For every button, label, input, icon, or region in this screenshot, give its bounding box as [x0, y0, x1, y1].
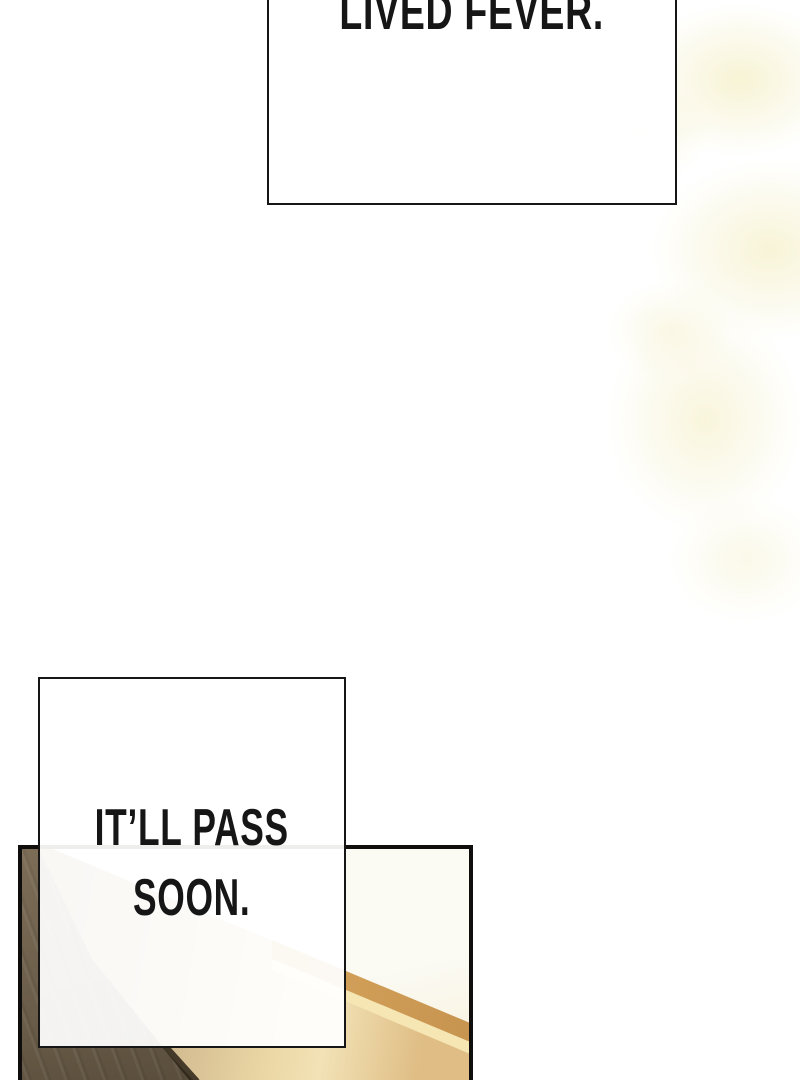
speech-text-top-line: LIVED FEVER. [340, 0, 605, 38]
speech-text-middle-line1: IT’LL PASS [95, 793, 289, 863]
speech-text-middle: IT’LL PASS SOON. [49, 793, 334, 933]
speech-box-top: LIVED FEVER. [267, 0, 677, 205]
comic-page: LIVED FEVER. IT’LL PASS SOON. [0, 0, 800, 1080]
speech-text-middle-line2: SOON. [95, 863, 289, 933]
speech-box-middle: IT’LL PASS SOON. [38, 677, 346, 1048]
speech-text-top: LIVED FEVER. [269, 0, 675, 38]
